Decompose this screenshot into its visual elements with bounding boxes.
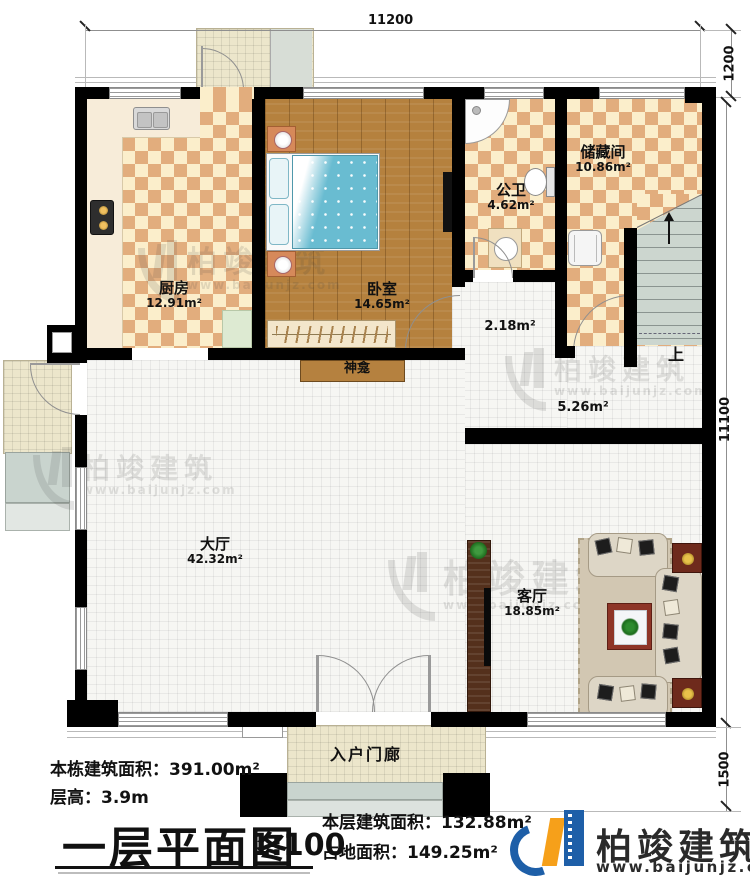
sofa-cushion	[663, 647, 680, 664]
wall-bathroom-storage	[555, 99, 567, 358]
extension-line	[700, 24, 701, 87]
living-room-label: 客厅 18.85m²	[504, 588, 560, 619]
bathroom-label: 公卫 4.62m²	[487, 182, 534, 213]
sink-basin	[137, 112, 152, 128]
burner	[99, 206, 108, 215]
room-area: 10.86m²	[575, 161, 631, 175]
lamp	[274, 256, 292, 274]
nightstand	[267, 251, 296, 277]
window	[118, 712, 228, 727]
sill-line	[75, 82, 716, 83]
room-area: 14.65m²	[354, 298, 410, 312]
wall-stairs	[624, 228, 637, 367]
wall-top	[544, 87, 599, 99]
table-ornament	[682, 553, 694, 565]
vestibule-floor	[452, 282, 567, 428]
title-underline-shadow	[58, 872, 310, 874]
window	[599, 87, 685, 99]
sofa-cushion	[619, 685, 636, 702]
heater-detail	[596, 235, 597, 262]
water-heater	[568, 230, 602, 266]
sofa-cushion	[640, 683, 656, 699]
toilet-tank	[546, 167, 555, 197]
window	[303, 87, 424, 99]
window	[484, 87, 544, 99]
wall-bedroom-bathroom	[452, 99, 465, 287]
bedroom-label: 卧室 14.65m²	[354, 281, 410, 312]
entry-porch-label: 入户门廊	[330, 746, 402, 764]
lamp	[274, 131, 292, 149]
company-logo-icon	[508, 806, 592, 882]
burner	[99, 221, 108, 230]
hall-label: 大厅 42.32m²	[187, 536, 243, 567]
entry-step	[287, 782, 443, 800]
sofa-cushion	[662, 623, 678, 639]
extension-line	[716, 727, 741, 728]
room-name: 客厅	[504, 588, 560, 605]
wall-storage-south	[567, 346, 575, 358]
dimension-right-bottom: 1500	[718, 751, 733, 787]
table-ornament	[682, 688, 694, 700]
wall-left	[75, 415, 87, 467]
storage-label: 储藏间 10.86m²	[575, 144, 631, 175]
pillow	[269, 158, 289, 199]
potted-plant	[470, 542, 487, 559]
room-name: 卧室	[354, 281, 410, 298]
stairs-direction-arrow	[668, 220, 670, 244]
window	[75, 467, 87, 530]
west-door-leaf	[30, 363, 80, 365]
wardrobe-hangers	[276, 326, 388, 343]
room-name: 储藏间	[575, 144, 631, 161]
vestibule-area-label: 2.18m²	[484, 320, 535, 335]
logo-building-windows	[568, 814, 572, 862]
wardrobe	[267, 320, 396, 348]
sofa-cushion	[663, 599, 680, 616]
sofa-cushion	[638, 539, 654, 555]
kitchen-door-threshold	[200, 87, 254, 99]
corner-table	[672, 678, 702, 708]
pillow	[269, 204, 289, 245]
wall-bedroom-south	[252, 348, 465, 360]
dimension-right-side: 11100	[718, 397, 733, 442]
room-name: 公卫	[487, 182, 534, 199]
coffee-table	[607, 603, 652, 650]
nightstand	[267, 126, 296, 152]
bathroom-door-leaf	[473, 237, 475, 278]
bedroom-tv	[443, 172, 452, 232]
kitchen-sink	[133, 107, 170, 130]
living-tv	[484, 588, 491, 666]
wall-bottom	[431, 712, 527, 727]
window	[527, 712, 666, 727]
bed-mattress	[292, 155, 378, 249]
west-porch-step	[5, 452, 70, 503]
table-plant	[621, 618, 639, 636]
heater-detail	[574, 235, 575, 262]
wall-left	[75, 87, 87, 363]
sofa-cushion	[662, 575, 679, 592]
stove	[90, 200, 114, 235]
extension-line	[85, 24, 86, 87]
sofa-cushion	[595, 538, 613, 556]
floor-plan-canvas: 柏竣建筑 www.baijunjz.com 柏竣建筑 www.baijunjz.…	[0, 0, 750, 888]
total-area-text: 本栋建筑面积：391.00m²	[50, 755, 260, 780]
sink-basin	[153, 112, 168, 128]
dimension-right-top: 1200	[723, 45, 738, 81]
back-door-leaf	[201, 46, 203, 90]
wall-bottom	[228, 712, 316, 727]
wall-right	[702, 87, 716, 727]
kitchen-mat	[222, 310, 252, 348]
room-area: 42.32m²	[187, 553, 243, 567]
sofa-cushion	[597, 684, 614, 701]
room-area: 12.91m²	[146, 297, 202, 311]
shrine-label: 神龛	[344, 362, 370, 377]
company-url: www.baijunjz.com	[596, 858, 750, 876]
entry-door-leaf	[428, 655, 431, 712]
room-area: 18.85m²	[504, 605, 560, 619]
wall-bottom-corner	[67, 700, 118, 727]
floor-area-text: 本层建筑面积：132.88m²	[322, 808, 532, 833]
window	[109, 87, 181, 99]
room-name: 厨房	[146, 280, 202, 297]
extension-line	[704, 30, 741, 31]
logo-building-blue	[564, 810, 584, 866]
wall-corridor-living	[465, 428, 702, 444]
kitchen-label: 厨房 12.91m²	[146, 280, 202, 311]
stairs-break-line	[639, 333, 700, 334]
footprint-area-text: 占地面积：149.25m²	[322, 838, 498, 863]
wall-top	[424, 87, 484, 99]
wall-top	[254, 87, 303, 99]
back-porch-step	[270, 29, 312, 94]
room-area: 4.62m²	[487, 199, 534, 213]
wall-kitchen-bedroom	[252, 99, 265, 360]
floor-height-text: 层高：3.9m	[50, 783, 149, 808]
corner-table	[672, 543, 702, 573]
wall-bathroom-south	[452, 270, 473, 282]
dimension-line-top	[85, 30, 700, 31]
title-underline	[55, 866, 313, 869]
stairs-arrow-head	[664, 212, 674, 221]
wall-left	[75, 530, 87, 607]
wall-top	[181, 87, 200, 99]
sill-line	[75, 77, 716, 78]
dimension-top: 11200	[368, 13, 413, 28]
corridor-area-label: 5.26m²	[557, 401, 608, 416]
room-name: 大厅	[187, 536, 243, 553]
window	[75, 607, 87, 670]
pier-window	[52, 332, 72, 353]
entry-door-leaf	[316, 655, 319, 712]
stairs-up-label: 上	[668, 346, 684, 364]
west-porch-step	[5, 503, 70, 531]
shower-head	[472, 106, 481, 115]
wall-kitchen-south	[75, 348, 132, 360]
sofa-cushion	[616, 537, 633, 554]
